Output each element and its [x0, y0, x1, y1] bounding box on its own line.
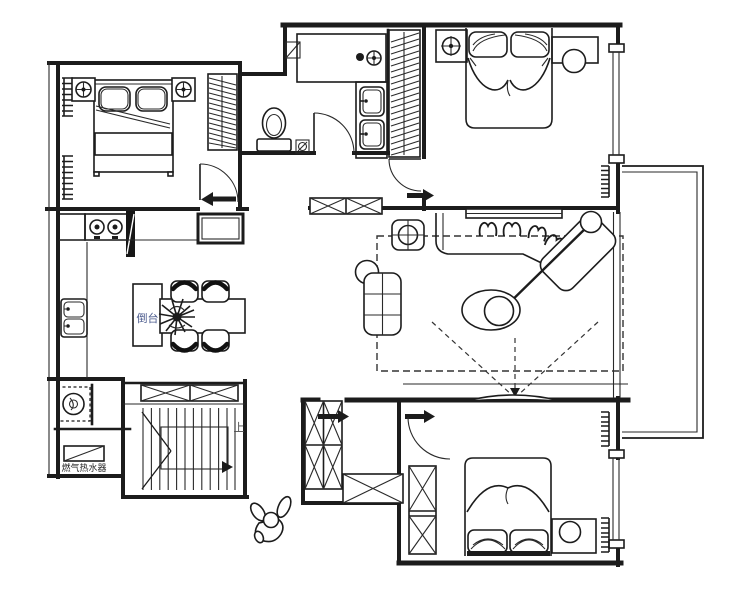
- double-bed: [94, 80, 173, 176]
- chaise-lounge: [536, 211, 619, 294]
- person-head: [264, 513, 279, 528]
- floorplan-page: 倒台: [0, 0, 740, 600]
- dining-area: 倒台: [133, 281, 245, 351]
- corridor-cabinet-x: [343, 474, 403, 503]
- bedroom-door-arrow: [405, 410, 435, 423]
- island-counter: 倒台: [133, 284, 162, 346]
- door-swing-bedroom-br: [408, 417, 450, 459]
- headboard: [467, 551, 550, 556]
- bedroom-bottom-right: [409, 458, 596, 556]
- person-figure: [248, 495, 294, 544]
- vanity-double-sink: [356, 82, 387, 158]
- living-room: [356, 209, 624, 401]
- double-bed: [466, 28, 552, 128]
- toilet: [257, 108, 291, 151]
- door-bathroom: [314, 113, 354, 153]
- nightstand-lamp: [436, 30, 467, 62]
- kitchen-sink: [61, 299, 87, 337]
- wardrobe-hatched: [208, 74, 237, 150]
- bedroom-top-left: [72, 74, 238, 206]
- nightstand-left: [72, 78, 95, 101]
- staircase: 上: [141, 385, 245, 490]
- kitchen-cabinet: [59, 214, 85, 240]
- stairs-cabinet-x: [141, 385, 238, 401]
- blanket-fold: [467, 486, 549, 512]
- bedside-table-lamp: [552, 519, 596, 553]
- blanket-fold: [468, 58, 550, 90]
- projection-screen: [466, 395, 561, 401]
- door-bedroom-tl: [200, 164, 238, 206]
- shower-head: [356, 51, 381, 65]
- bedside-table-lamp: [552, 37, 598, 73]
- wardrobe-x: [409, 466, 436, 554]
- double-bed: [465, 458, 551, 556]
- bathroom: [257, 34, 387, 158]
- dining-chair: [202, 281, 229, 302]
- pillow: [468, 530, 507, 553]
- window-bottom-right: [609, 450, 624, 548]
- stove: [85, 214, 127, 240]
- stair-break-line: [142, 412, 171, 489]
- floorplan-canvas: 倒台: [0, 0, 740, 600]
- door-bedroom-tr: [389, 159, 434, 202]
- window-top-right: [609, 44, 624, 163]
- pillow: [510, 530, 548, 553]
- gas-water-heater: 燃气热水器: [61, 446, 106, 473]
- fridge: [198, 214, 243, 243]
- nightstand-right: [172, 78, 195, 101]
- armchair: [364, 273, 401, 335]
- stair-treads: [143, 408, 235, 490]
- wardrobe-hall-hatched: [389, 30, 420, 157]
- wall-fixture: [392, 220, 424, 250]
- hall-cabinet-x: [310, 198, 382, 214]
- balcony: [614, 166, 704, 438]
- stair-walk-line: [161, 427, 228, 469]
- dining-chair: [171, 281, 198, 302]
- dining-chair: [202, 330, 229, 351]
- washing-machine: [57, 387, 90, 421]
- island-label: 倒台: [137, 311, 159, 325]
- projector-beam: [432, 322, 598, 397]
- tall-cabinet-divider: [126, 211, 135, 257]
- water-heater-label: 燃气热水器: [61, 462, 106, 473]
- stairs-up-label: 上: [234, 421, 245, 434]
